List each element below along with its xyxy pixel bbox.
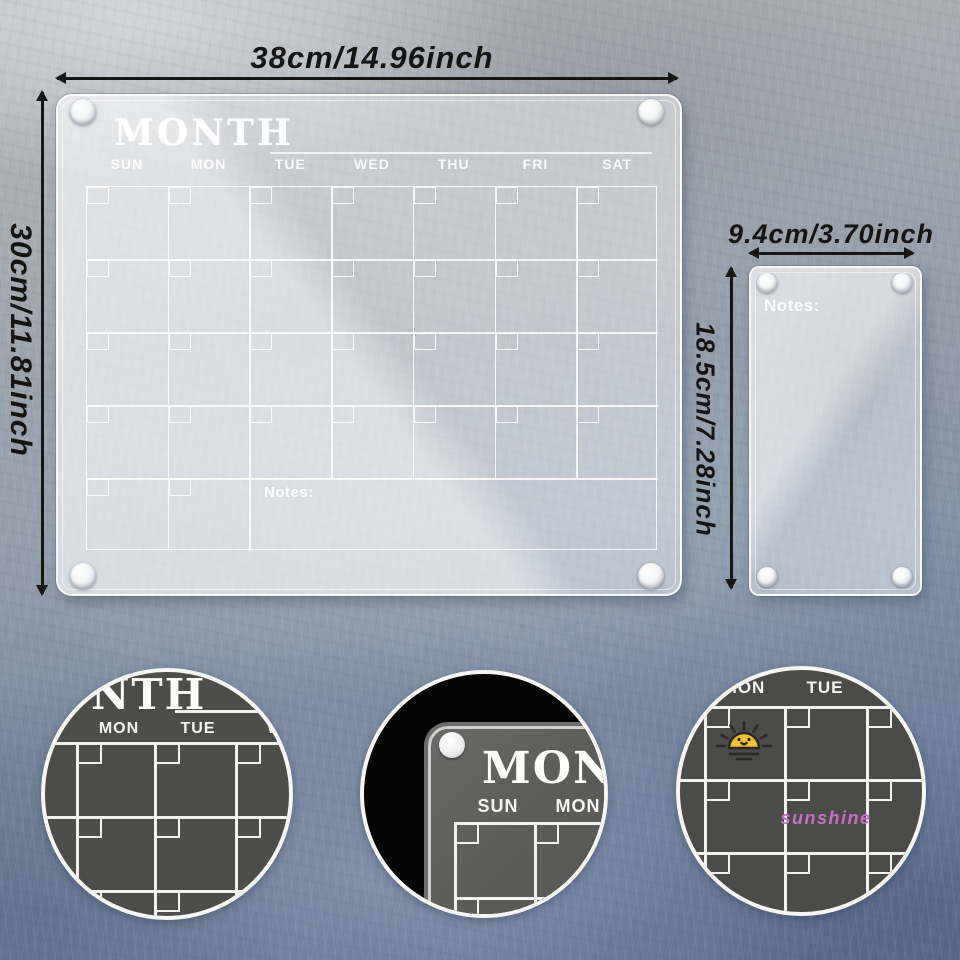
weekday-label: FRI [495, 156, 577, 172]
weekday-label: SUN [86, 156, 168, 172]
handwriting-sample: sunshine [780, 808, 871, 829]
board-height-label: 30cm/11.81inch [3, 140, 37, 540]
product-spec-image: 38cm/14.96inch 30cm/11.81inch MONTH SUN … [0, 0, 960, 960]
magnet-hole [892, 567, 912, 587]
sun-doodle-icon [712, 715, 776, 769]
calendar-grid-zoom [431, 729, 608, 918]
calendar-grid [86, 186, 658, 551]
notes-board-width-arrow [750, 252, 913, 255]
detail-circle-writing-sample: MON TUE sunshine [676, 666, 926, 916]
notes-board-height-arrow [730, 268, 733, 588]
detail-circle-corner-zoom: MONTH SUN MON [360, 670, 608, 918]
board-width-arrow [57, 77, 677, 80]
magnet-hole [757, 273, 777, 293]
weekday-label: MON [168, 156, 250, 172]
magnet-hole [70, 563, 96, 589]
board-title: MONTH [114, 112, 294, 154]
notes-board: Notes: [749, 266, 922, 596]
monthly-calendar-board: MONTH SUN MON TUE WED THU FRI SAT Notes: [56, 94, 682, 596]
notes-label: Notes: [764, 296, 820, 316]
notes-label: Notes: [264, 484, 314, 501]
weekday-label: WED [331, 156, 413, 172]
detail-circle-calendar-zoom: NTH MON TUE WE [41, 668, 293, 920]
magnet-hole [638, 99, 664, 125]
weekday-label: SAT [576, 156, 658, 172]
weekday-label: TUE [249, 156, 331, 172]
notes-board-height-label: 18.5cm/7.28inch [690, 270, 721, 590]
calendar-grid-zoom [45, 672, 289, 916]
magnet-hole [70, 99, 96, 125]
board-corner: MONTH SUN MON [428, 726, 608, 918]
magnet-hole [638, 563, 664, 589]
magnet-hole [892, 273, 912, 293]
board-height-arrow [41, 92, 44, 594]
title-underline [270, 152, 652, 154]
weekday-label: THU [413, 156, 495, 172]
notes-board-width-label: 9.4cm/3.70inch [706, 219, 956, 250]
calendar-grid-zoom [680, 670, 922, 912]
magnet-hole [757, 567, 777, 587]
board-width-label: 38cm/14.96inch [172, 40, 572, 76]
weekday-header-row: SUN MON TUE WED THU FRI SAT [86, 156, 658, 172]
